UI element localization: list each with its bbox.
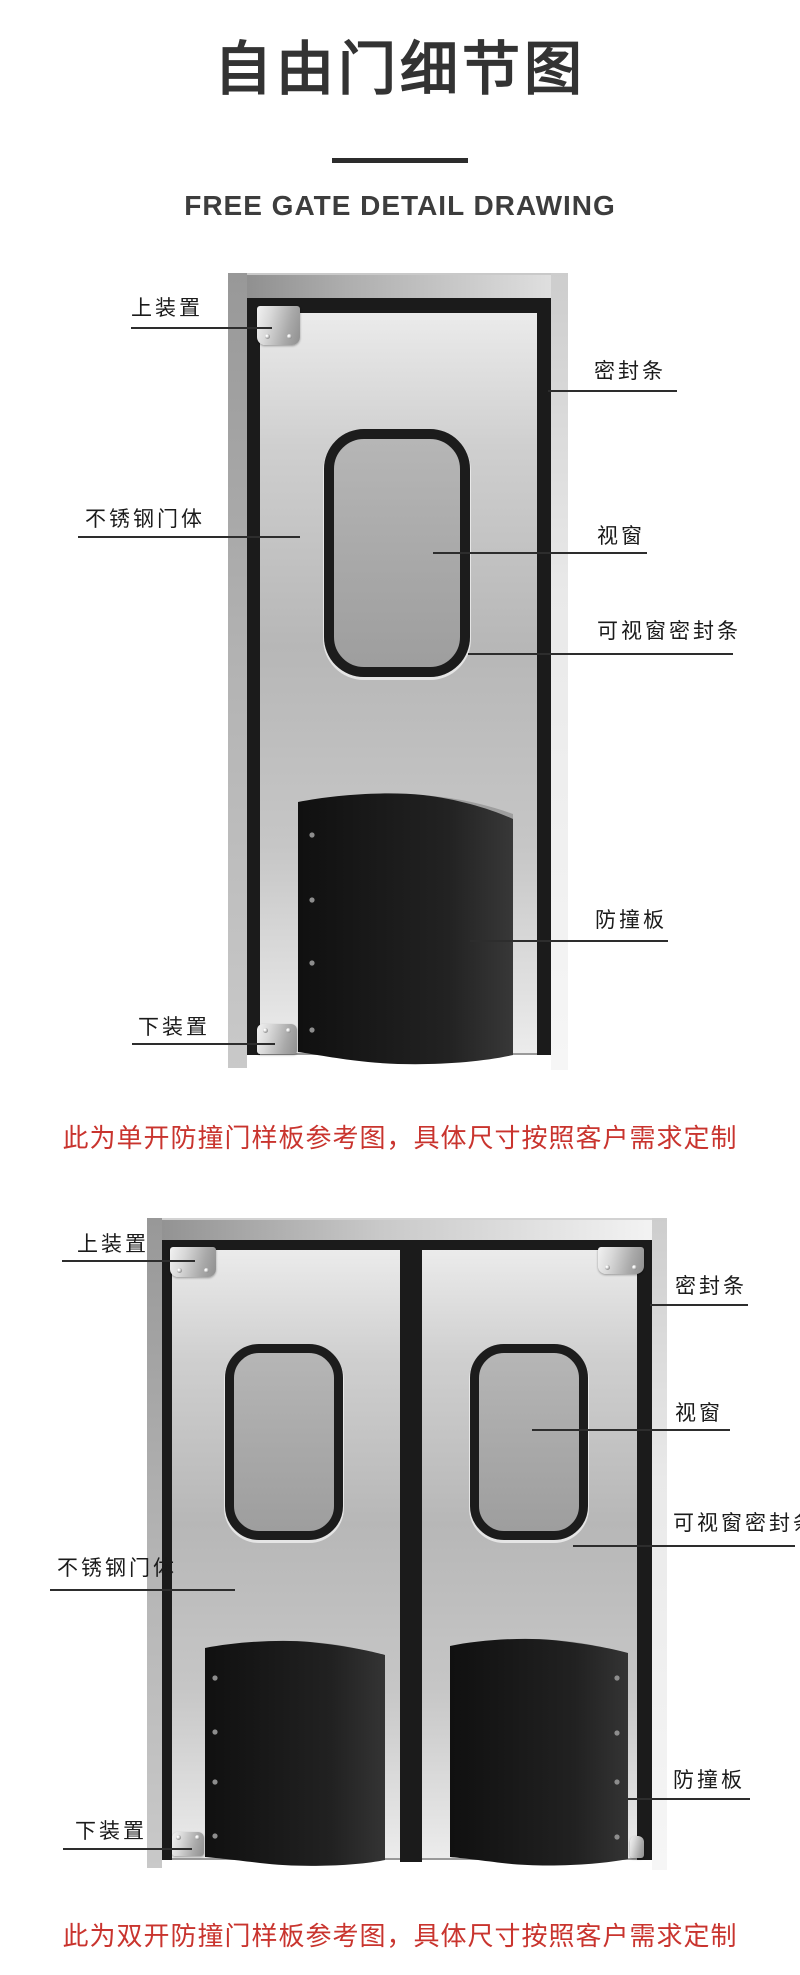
leader-bottom-device [63,1848,192,1850]
double-door-diagram: 上装置 不锈钢门体 下装置 密封条 视窗 可视窗密封条 防撞板 此为双开防撞门样… [0,0,800,1975]
center-mullion-seal [400,1250,422,1862]
leader-window [532,1429,730,1431]
right-anti-collision-bumper [450,1636,628,1868]
bumper-plate [205,1641,385,1866]
bumper-plate [450,1639,628,1866]
label-door-seal: 密封条 [675,1276,747,1297]
poster-canvas: 自由门细节图 FREE GATE DETAIL DRAWING [0,0,800,1975]
screw [195,1835,200,1840]
rivet [212,1779,217,1784]
screw [605,1265,610,1270]
rivet [614,1730,619,1735]
double-door-caption: 此为双开防撞门样板参考图，具体尺寸按照客户需求定制 [0,1916,800,1953]
left-anti-collision-bumper [205,1638,385,1868]
right-door-window [470,1344,588,1540]
leader-window-seal [573,1545,795,1547]
rivet [614,1675,619,1680]
label-window-seal: 可视窗密封条 [673,1513,800,1534]
label-bottom-device: 下装置 [75,1821,147,1842]
right-bottom-hinge-plate [630,1836,644,1858]
screw [632,1265,637,1270]
left-top-hinge-plate [170,1247,216,1277]
leader-bumper [628,1798,750,1800]
screw [177,1268,182,1273]
left-door-window [225,1344,343,1540]
leader-door-body [50,1589,235,1591]
rivet [614,1779,619,1784]
screw [204,1268,209,1273]
left-bottom-hinge-plate [172,1832,204,1856]
rivet [212,1833,217,1838]
label-window: 视窗 [675,1403,723,1424]
label-top-device: 上装置 [77,1234,149,1255]
leader-door-seal [650,1304,748,1306]
rivet [212,1675,217,1680]
right-top-hinge-plate [598,1247,644,1274]
label-bumper: 防撞板 [673,1770,745,1791]
door-frame-left [147,1218,162,1868]
label-door-body: 不锈钢门体 [57,1558,177,1579]
door-frame-right [652,1218,667,1870]
rivet [614,1834,619,1839]
door-frame-top [147,1218,667,1242]
leader-top-device [62,1260,195,1262]
rivet [212,1729,217,1734]
screw [176,1835,181,1840]
